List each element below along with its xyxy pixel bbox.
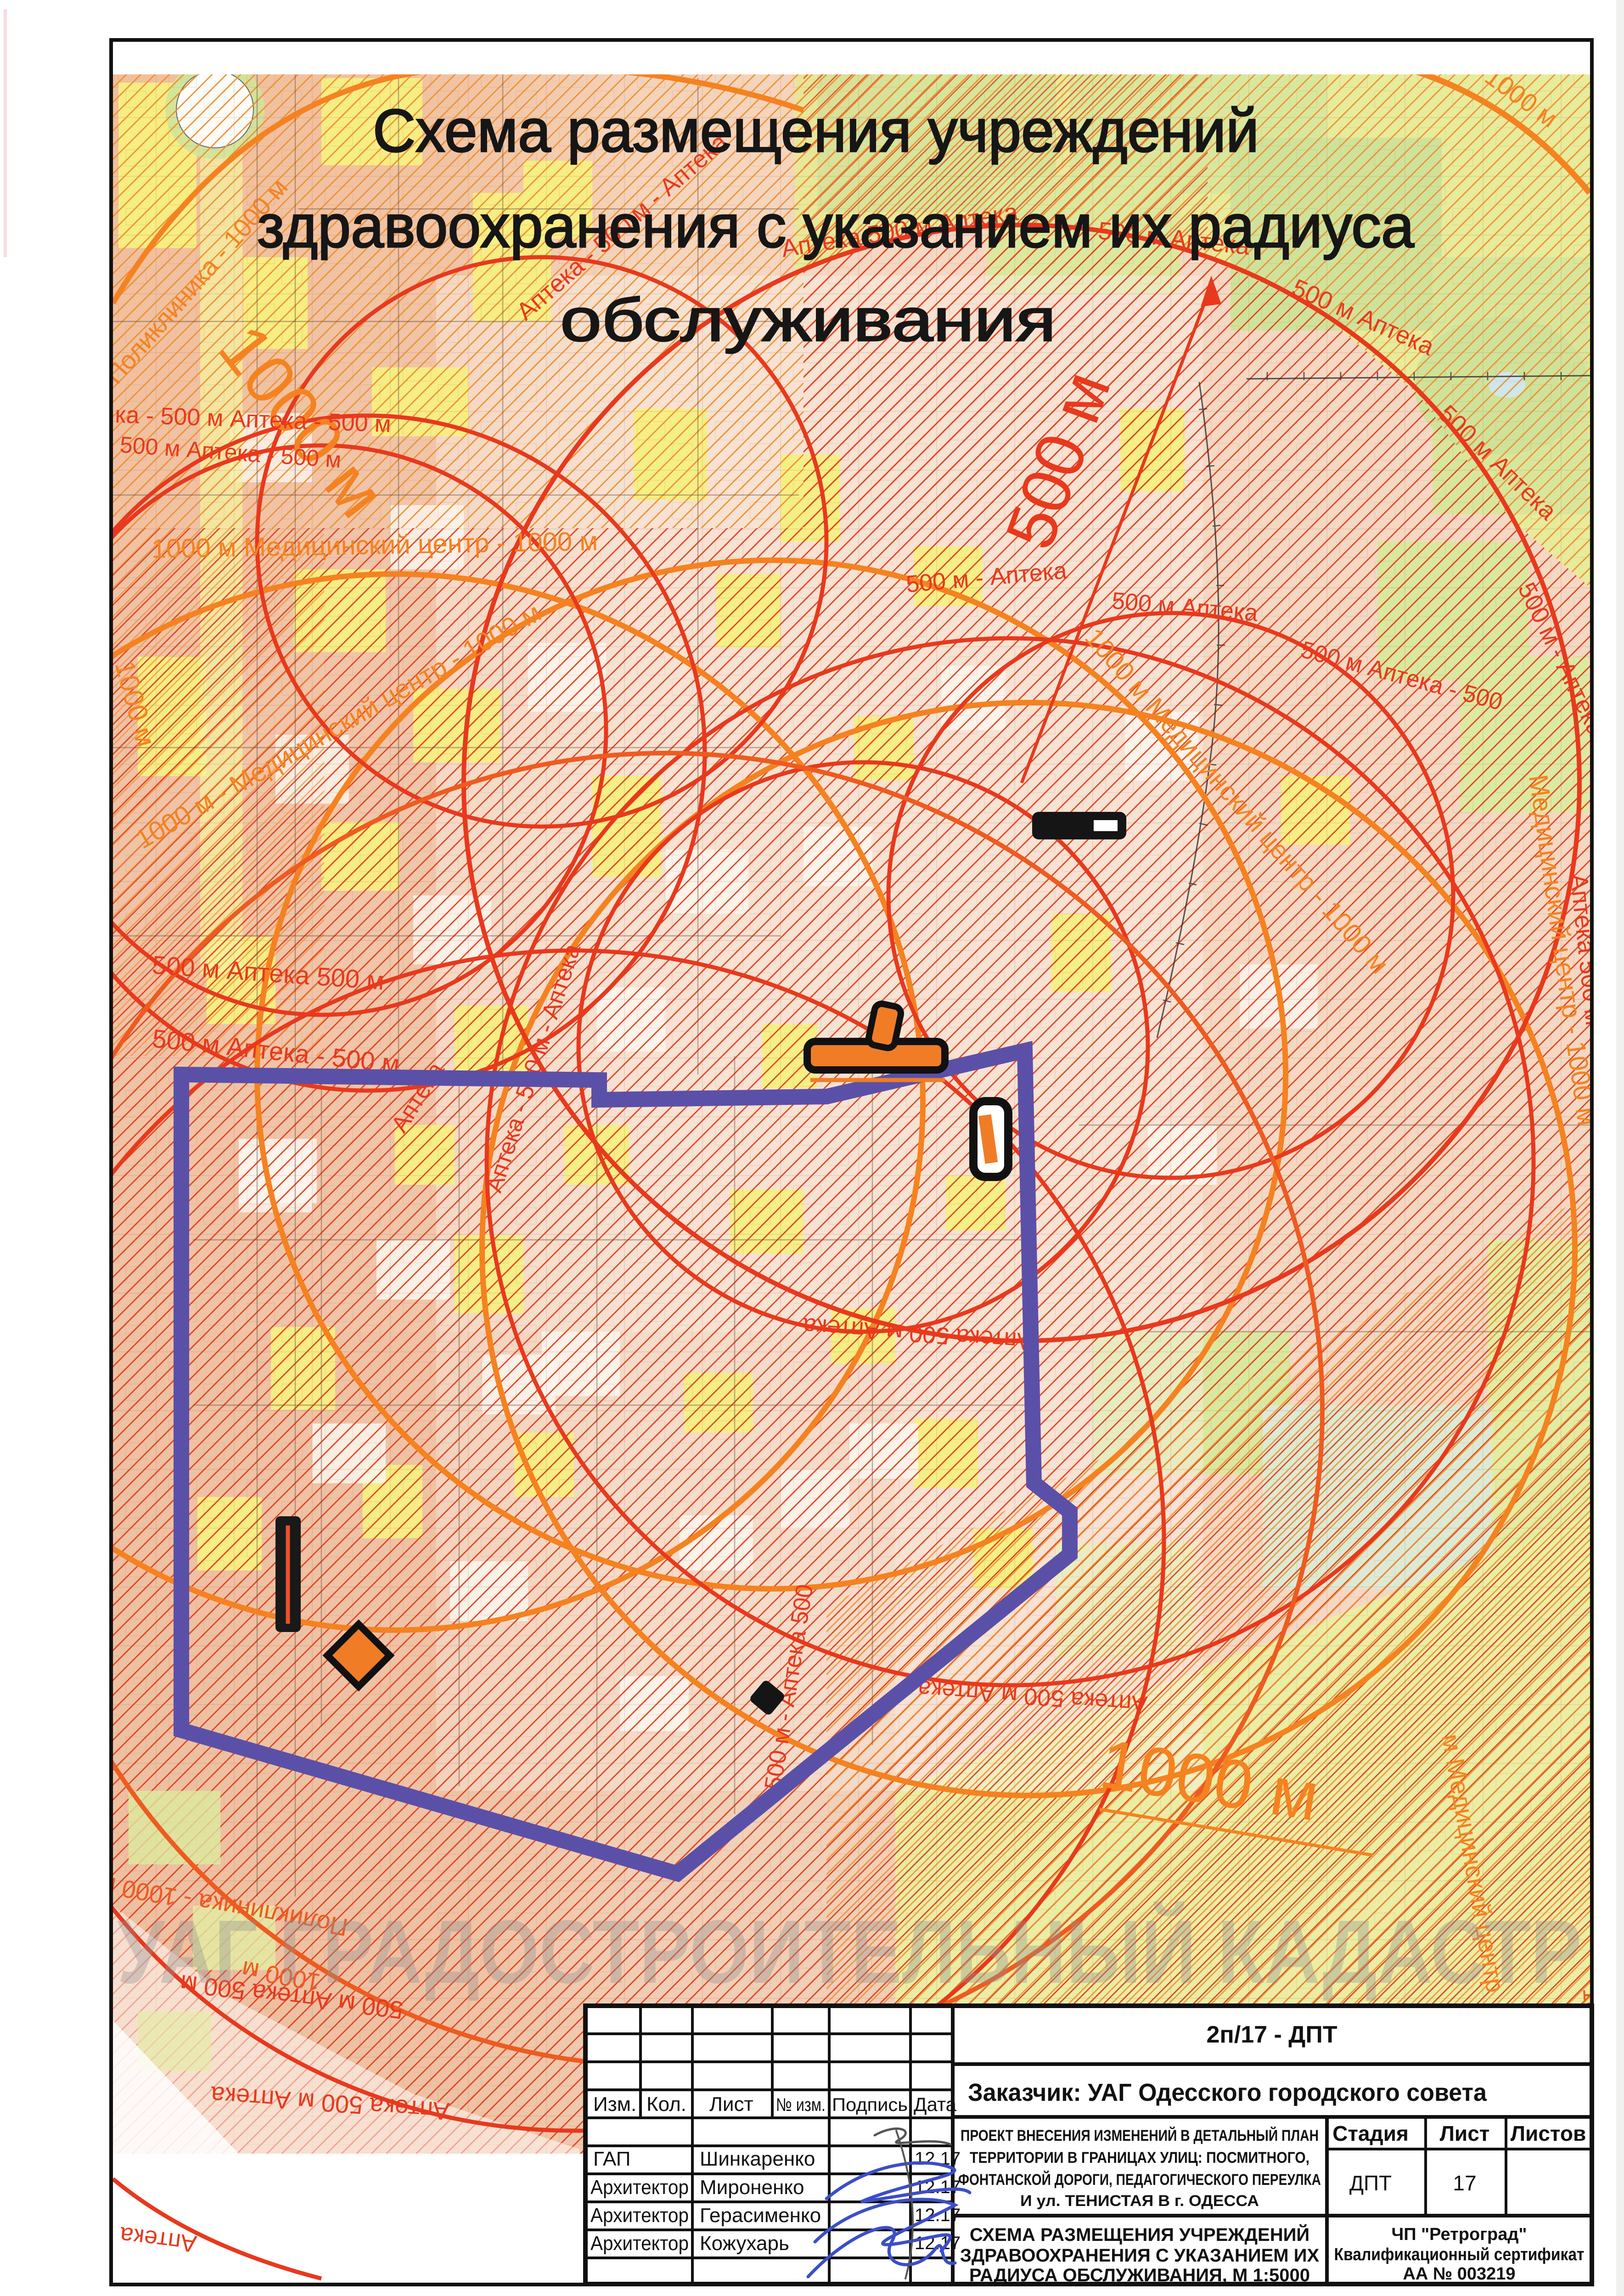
svg-text:ЗДРАВООХРАНЕНИЯ С УКАЗАНИЕМ ИХ: ЗДРАВООХРАНЕНИЯ С УКАЗАНИЕМ ИХ bbox=[960, 2245, 1320, 2266]
svg-text:ТЕРРИТОРИИ В ГРАНИЦАХ УЛИЦ: ПО: ТЕРРИТОРИИ В ГРАНИЦАХ УЛИЦ: ПОСМИТНОГО, bbox=[970, 2149, 1309, 2167]
svg-text:2п/17 - ДПТ: 2п/17 - ДПТ bbox=[1206, 2021, 1337, 2048]
svg-text:Квалификационный сертификат: Квалификационный сертификат bbox=[1334, 2245, 1585, 2264]
svg-text:17: 17 bbox=[1453, 2171, 1476, 2195]
svg-text:Архитектор: Архитектор bbox=[590, 2204, 689, 2227]
svg-text:здравоохранения с указанием их: здравоохранения с указанием их радиуса bbox=[257, 192, 1415, 260]
svg-text:обслуживания: обслуживания bbox=[560, 286, 1056, 354]
svg-text:Кол.: Кол. bbox=[646, 2093, 686, 2116]
svg-text:Листов: Листов bbox=[1511, 2122, 1586, 2145]
svg-text:Заказчик: УАГ Одесского город: Заказчик: УАГ Одесского городского совет… bbox=[968, 2079, 1487, 2106]
svg-text:Лист: Лист bbox=[709, 2093, 753, 2116]
svg-text:Архитектор: Архитектор bbox=[590, 2176, 689, 2199]
svg-text:Кожухарь: Кожухарь bbox=[700, 2232, 789, 2255]
svg-text:ПРОЕКТ ВНЕСЕНИЯ ИЗМЕНЕНИЙ В ДЕ: ПРОЕКТ ВНЕСЕНИЯ ИЗМЕНЕНИЙ В ДЕТАЛЬНЫЙ ПЛ… bbox=[961, 2127, 1319, 2144]
svg-text:Стадия: Стадия bbox=[1332, 2122, 1409, 2145]
svg-text:И ул. ТЕНИСТАЯ В г. ОДЕССА: И ул. ТЕНИСТАЯ В г. ОДЕССА bbox=[1020, 2192, 1259, 2210]
svg-text:ФОНТАНСКОЙ ДОРОГИ, ПЕДАГОГИЧЕС: ФОНТАНСКОЙ ДОРОГИ, ПЕДАГОГИЧЕСКОГО ПЕРЕУ… bbox=[958, 2171, 1321, 2189]
svg-text:12.17: 12.17 bbox=[915, 2177, 961, 2197]
svg-text:Архитектор: Архитектор bbox=[590, 2232, 689, 2255]
svg-text:Шинкаренко: Шинкаренко bbox=[700, 2148, 815, 2170]
svg-text:12.17: 12.17 bbox=[915, 2149, 961, 2169]
svg-text:РАДИУСА ОБСЛУЖИВАНИЯ, М 1:5000: РАДИУСА ОБСЛУЖИВАНИЯ, М 1:5000 bbox=[969, 2265, 1310, 2285]
svg-text:УАГ ГРАДОСТРОИТЕЛЬНЫЙ КАДАСТР: УАГ ГРАДОСТРОИТЕЛЬНЫЙ КАДАСТР bbox=[117, 1901, 1582, 2002]
svg-text:Изм.: Изм. bbox=[593, 2093, 636, 2116]
svg-text:Схема размещения учреждений: Схема размещения учреждений bbox=[373, 97, 1259, 164]
svg-text:Мироненко: Мироненко bbox=[700, 2176, 804, 2199]
svg-text:ГАП: ГАП bbox=[593, 2148, 630, 2170]
svg-text:Подпись: Подпись bbox=[832, 2095, 908, 2115]
svg-text:АА № 003219: АА № 003219 bbox=[1403, 2264, 1515, 2284]
svg-text:Лист: Лист bbox=[1440, 2122, 1490, 2145]
svg-text:ЧП "Ретроград": ЧП "Ретроград" bbox=[1392, 2225, 1527, 2244]
svg-text:СХЕМА РАЗМЕЩЕНИЯ УЧРЕЖДЕНИЙ: СХЕМА РАЗМЕЩЕНИЯ УЧРЕЖДЕНИЙ bbox=[970, 2224, 1309, 2245]
svg-text:Дата: Дата bbox=[914, 2093, 957, 2115]
svg-text:Герасименко: Герасименко bbox=[700, 2204, 821, 2227]
svg-text:ДПТ: ДПТ bbox=[1349, 2171, 1392, 2195]
svg-text:№ изм.: № изм. bbox=[776, 2095, 826, 2115]
